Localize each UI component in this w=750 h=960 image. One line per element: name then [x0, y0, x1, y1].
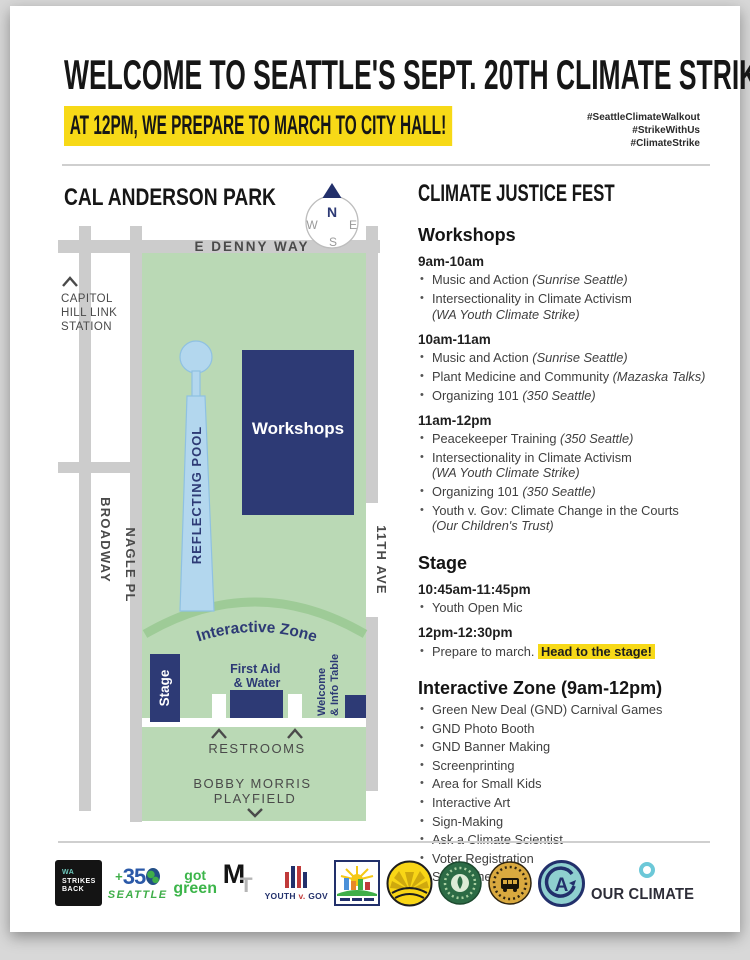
- logo-350-number: +35: [115, 866, 160, 888]
- restrooms-label: RESTROOMS: [208, 741, 305, 756]
- time-slot-heading: 12pm-12:30pm: [418, 625, 718, 640]
- schedule-sections: Workshops9am-10am•Music and Action (Sunr…: [418, 225, 718, 887]
- compass: N W E S: [306, 183, 358, 249]
- bullet-dot: •: [418, 450, 432, 482]
- item-text: Peacekeeper Training (350 Seattle): [432, 431, 633, 447]
- restroom-opening: [212, 694, 226, 727]
- bullet-dot: •: [418, 291, 432, 323]
- schedule-item: •Intersectionality in Climate Activism(W…: [418, 290, 718, 324]
- stage-label: Stage: [157, 669, 172, 706]
- logo-text: T: [240, 875, 253, 896]
- compass-e: E: [349, 218, 357, 232]
- bullet-list: •Youth Open Mic: [418, 599, 718, 618]
- schedule-item: •Prepare to march. Head to the stage!: [418, 642, 718, 661]
- wa-strikes-back-badge: WA STRIKES BACK: [55, 860, 102, 906]
- subtitle-banner: AT 12PM, WE PREPARE TO MARCH TO CITY HAL…: [64, 106, 452, 146]
- green-seal-icon: [438, 861, 482, 905]
- schedule-title: CLIMATE JUSTICE FEST: [418, 180, 628, 208]
- org-name: (350 Seattle): [557, 431, 634, 446]
- youth-v-gov-mark-icon: [285, 866, 307, 888]
- logo-350-seattle: +35 SEATTLE: [108, 866, 168, 901]
- logo-youth-v-gov: YOUTH v. GOV: [265, 866, 328, 901]
- bullet-dot: •: [418, 739, 432, 755]
- logo-green-seal: [438, 861, 482, 905]
- org-name: (WA Youth Climate Strike): [432, 465, 632, 481]
- item-text: Green New Deal (GND) Carnival Games: [432, 702, 662, 718]
- first-aid-area: [230, 690, 283, 718]
- bullet-list: •Music and Action (Sunrise Seattle)•Plan…: [418, 349, 718, 405]
- logo-text: green: [173, 882, 217, 896]
- schedule-item: •GND Photo Booth: [418, 719, 718, 738]
- sunrise-badge-icon: [386, 860, 433, 907]
- street-label-broadway: BROADWAY: [98, 497, 113, 583]
- park-area: [142, 253, 366, 821]
- bullet-dot: •: [418, 388, 432, 404]
- schedule-item: •Intersectionality in Climate Activism(W…: [418, 448, 718, 482]
- org-name: (Mazaska Talks): [609, 369, 705, 384]
- item-text: Intersectionality in Climate Activism(WA…: [432, 450, 632, 482]
- svg-text:A: A: [555, 875, 569, 896]
- bullet-dot: •: [418, 503, 432, 535]
- item-text: Intersectionality in Climate Activism(WA…: [432, 291, 632, 323]
- item-text: Youth Open Mic: [432, 600, 523, 616]
- time-slot-heading: 11am-12pm: [418, 413, 718, 428]
- section-heading: Stage: [418, 553, 718, 574]
- compass-s: S: [329, 235, 337, 249]
- org-name: (350 Seattle): [519, 388, 596, 403]
- logo-got-green: got green: [173, 870, 217, 895]
- logo-text: STRIKES: [62, 878, 102, 887]
- schedule-column: CLIMATE JUSTICE FEST Workshops9am-10am•M…: [418, 180, 718, 891]
- item-text: GND Banner Making: [432, 739, 550, 755]
- transit-riders-union-icon: [488, 861, 532, 905]
- item-text: Screenprinting: [432, 758, 515, 774]
- schedule-item: •Area for Small Kids: [418, 775, 718, 794]
- subtitle-text: AT 12PM, WE PREPARE TO MARCH TO CITY HAL…: [70, 110, 447, 140]
- logo-climate-city-badge: [334, 860, 380, 906]
- logo-wa-strikes-back: WA STRIKES BACK: [55, 860, 102, 906]
- time-slot-heading: 10am-11am: [418, 332, 718, 347]
- logo-text: OUR CLIMATE: [591, 886, 694, 904]
- logo-text: 35: [123, 866, 145, 888]
- restroom-opening: [288, 694, 302, 727]
- street-nagle-pl: [130, 226, 142, 822]
- item-text: Organizing 101 (350 Seattle): [432, 388, 596, 404]
- globe-icon: [146, 868, 160, 885]
- logo-text: +: [115, 870, 122, 883]
- first-aid-label: First Aid & Water: [230, 662, 284, 690]
- org-name: (Sunrise Seattle): [529, 350, 628, 365]
- logo-text: YOUTH v. GOV: [265, 891, 328, 901]
- org-name: (WA Youth Climate Strike): [432, 307, 632, 323]
- logo-text: SEATTLE: [108, 890, 168, 901]
- hashtag: #SeattleClimateWalkout: [587, 111, 700, 124]
- ca-monogram-icon: A: [538, 860, 585, 907]
- street-label-11th: 11TH AVE: [374, 525, 389, 595]
- bullet-list: •Prepare to march. Head to the stage!: [418, 642, 718, 661]
- schedule-item: •Music and Action (Sunrise Seattle): [418, 349, 718, 368]
- compass-north-arrow: [323, 183, 342, 198]
- item-text: GND Photo Booth: [432, 721, 534, 737]
- bullet-dot: •: [418, 350, 432, 366]
- bullet-dot: •: [418, 272, 432, 288]
- reflecting-pool-label: REFLECTING POOL: [189, 426, 204, 565]
- schedule-item: •GND Banner Making: [418, 738, 718, 757]
- footer-divider: [58, 841, 710, 843]
- compass-n: N: [327, 204, 337, 220]
- bullet-dot: •: [418, 795, 432, 811]
- item-text: Music and Action (Sunrise Seattle): [432, 350, 628, 366]
- item-text: Organizing 101 (350 Seattle): [432, 484, 596, 500]
- schedule-item: •Plant Medicine and Community (Mazaska T…: [418, 368, 718, 387]
- city-badge-icon: [334, 860, 380, 906]
- item-text: Music and Action (Sunrise Seattle): [432, 272, 628, 288]
- org-name: (350 Seattle): [519, 484, 596, 499]
- hashtags: #SeattleClimateWalkout #StrikeWithUs #Cl…: [587, 111, 700, 150]
- org-name: (Our Children's Trust): [432, 518, 679, 534]
- item-text: Prepare to march. Head to the stage!: [432, 644, 655, 660]
- schedule-item: •Organizing 101 (350 Seattle): [418, 483, 718, 502]
- schedule-item: •Green New Deal (GND) Carnival Games: [418, 701, 718, 720]
- logo-sunrise-movement: [386, 860, 433, 907]
- bullet-dot: •: [418, 758, 432, 774]
- highlight-text: Head to the stage!: [538, 644, 655, 659]
- street-label-denny: E DENNY WAY: [194, 239, 309, 254]
- item-text: Youth v. Gov: Climate Change in the Cour…: [432, 503, 679, 535]
- time-slot-heading: 9am-10am: [418, 254, 718, 269]
- compass-w: W: [306, 218, 318, 232]
- bullet-dot: •: [418, 814, 432, 830]
- logo-mt-monogram: M T: [223, 861, 259, 905]
- schedule-item: •Screenprinting: [418, 756, 718, 775]
- header-divider: [62, 164, 710, 166]
- bullet-dot: •: [418, 484, 432, 500]
- logo-text: BACK: [62, 886, 102, 895]
- bullet-dot: •: [418, 776, 432, 792]
- workshops-label: Workshops: [252, 419, 344, 438]
- time-slot-heading: 10:45am-11:45pm: [418, 582, 718, 597]
- bullet-dot: •: [418, 702, 432, 718]
- our-climate-ring-icon: [639, 862, 655, 878]
- org-name: (Sunrise Seattle): [529, 272, 628, 287]
- bullet-dot: •: [418, 431, 432, 447]
- page-title: WELCOME TO SEATTLE'S SEPT. 20TH CLIMATE …: [64, 54, 750, 96]
- bullet-list: •Peacekeeper Training (350 Seattle)•Inte…: [418, 430, 718, 536]
- bullet-dot: •: [418, 644, 432, 660]
- item-text: Plant Medicine and Community (Mazaska Ta…: [432, 369, 705, 385]
- street-cross: [58, 462, 130, 473]
- item-text: Interactive Art: [432, 795, 510, 811]
- schedule-item: •Sign-Making: [418, 812, 718, 831]
- logo-ca-monogram: A: [538, 860, 585, 907]
- section-heading: Interactive Zone (9am-12pm): [418, 678, 718, 699]
- logo-our-climate: OUR CLIMATE: [591, 862, 703, 904]
- logo-text: WA: [62, 869, 102, 878]
- bullet-dot: •: [418, 369, 432, 385]
- bullet-list: •Music and Action (Sunrise Seattle)•Inte…: [418, 271, 718, 324]
- schedule-item: •Peacekeeper Training (350 Seattle): [418, 430, 718, 449]
- street-label-nagle: NAGLE PL: [123, 527, 138, 602]
- bullet-dot: •: [418, 721, 432, 737]
- schedule-item: •Music and Action (Sunrise Seattle): [418, 271, 718, 290]
- schedule-item: •Organizing 101 (350 Seattle): [418, 386, 718, 405]
- flyer-canvas: WELCOME TO SEATTLE'S SEPT. 20TH CLIMATE …: [0, 0, 750, 960]
- hashtag: #StrikeWithUs: [587, 124, 700, 137]
- bullet-dot: •: [418, 600, 432, 616]
- logo-transit-riders-union: [488, 861, 532, 905]
- schedule-item: •Youth v. Gov: Climate Change in the Cou…: [418, 501, 718, 535]
- park-map: Interactive Zone REFLECTING POOL Worksho…: [40, 170, 410, 850]
- logo-row: WA STRIKES BACK +35 SEATTLE got green M …: [55, 855, 703, 911]
- hashtag: #ClimateStrike: [587, 137, 700, 150]
- schedule-item: •Interactive Art: [418, 794, 718, 813]
- schedule-item: •Youth Open Mic: [418, 599, 718, 618]
- welcome-table-area: [345, 695, 366, 718]
- station-arrow: [63, 278, 77, 286]
- item-text: Sign-Making: [432, 814, 503, 830]
- station-label: CAPITOL HILL LINK STATION: [61, 293, 121, 333]
- section-heading: Workshops: [418, 225, 718, 246]
- item-text: Area for Small Kids: [432, 776, 542, 792]
